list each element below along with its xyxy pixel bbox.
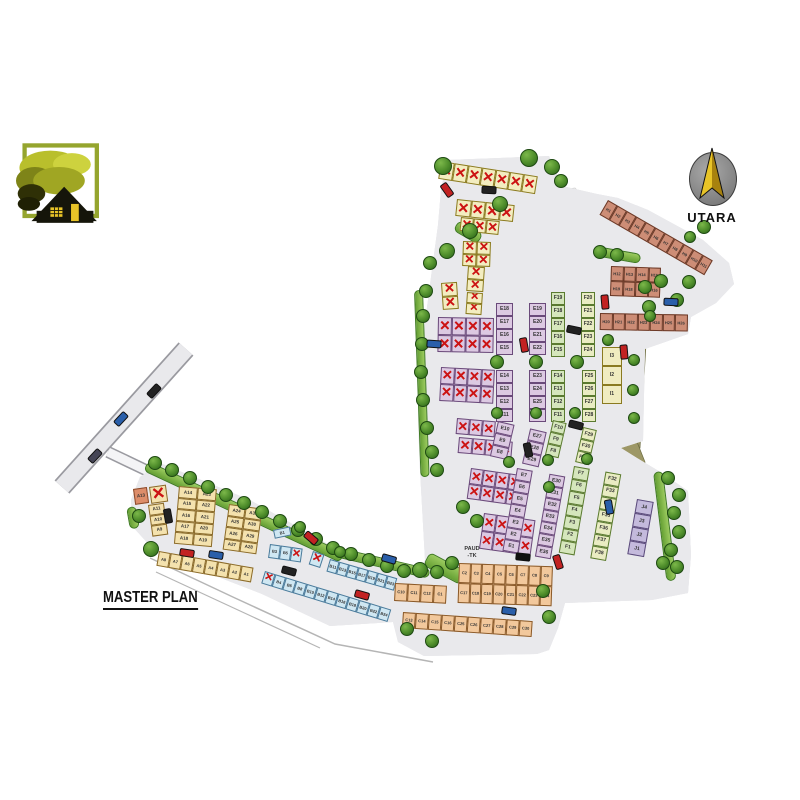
- north-arrow-icon: [692, 146, 732, 210]
- house-tree-logo-icon: [16, 140, 102, 230]
- paud-tk-label: PAUD -TK: [457, 546, 487, 559]
- paud-line1: PAUD: [457, 546, 487, 553]
- compass-label: UTARA: [680, 210, 744, 225]
- compass: UTARA: [680, 150, 744, 228]
- compass-dial: [686, 150, 738, 208]
- paud-line2: -TK: [457, 553, 487, 560]
- developer-logo: [16, 140, 102, 230]
- master-plan-canvas: ✕✕✕✕✕✕✕✕✕✕✕✕✕✕✕✕✕✕✕✕✕✕✕✕✕✕✕✕✕✕✕✕✕✕✕✕✕✕✕✕…: [0, 0, 800, 800]
- page-title: MASTER PLAN: [103, 589, 198, 610]
